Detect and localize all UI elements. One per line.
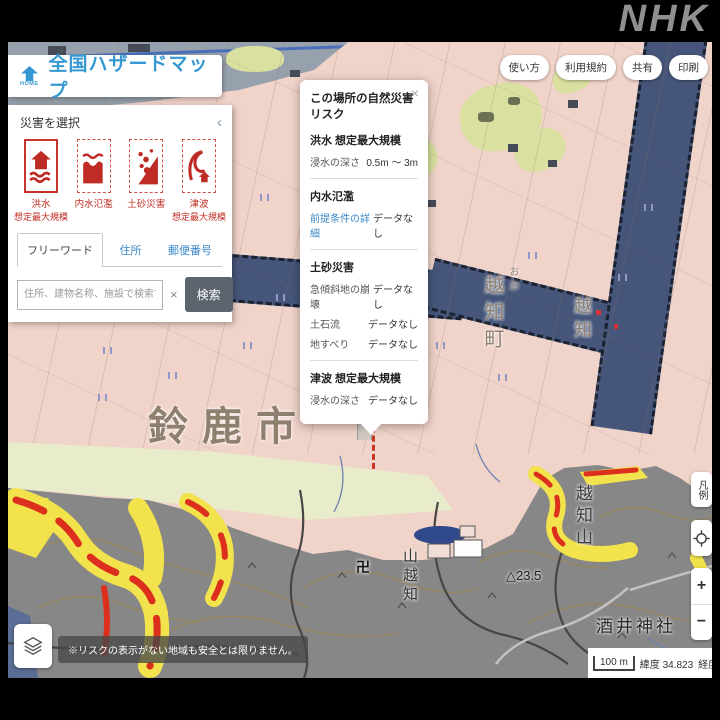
- paddy-symbol: [260, 194, 269, 201]
- latitude-label: 緯度: [640, 660, 660, 671]
- dosha-row-value: データなし: [373, 281, 418, 311]
- paddy-symbol: [168, 372, 177, 379]
- paddy-symbol: [243, 342, 252, 349]
- search-input[interactable]: [17, 280, 163, 310]
- tsunami-depth-label: 浸水の深さ: [310, 392, 360, 407]
- home-arrow-icon: [21, 66, 38, 81]
- search-button[interactable]: 検索: [185, 277, 233, 312]
- dosha-row-label: 地すべり: [310, 336, 349, 351]
- map-label-temple: 卍: [356, 557, 370, 577]
- flood-section-title: 洪水 想定最大規模: [310, 132, 418, 148]
- map-scale: 100 m: [593, 656, 635, 671]
- paddy-symbol: [276, 294, 285, 301]
- home-button[interactable]: HOME: [20, 66, 39, 87]
- tsunami-icon: [186, 145, 212, 187]
- app-title: 全国ハザードマップ: [49, 49, 223, 103]
- disaster-naisui-button[interactable]: 内水氾濫: [77, 139, 111, 223]
- disaster-panel: 災害を選択 ‹ 洪水 想定最大規模: [8, 105, 232, 322]
- current-location-button[interactable]: [691, 520, 712, 556]
- paddy-symbol: [103, 347, 112, 354]
- share-button[interactable]: 共有: [623, 55, 662, 80]
- map-label-yamaochi: 山越知: [399, 548, 420, 605]
- disaster-flood-button[interactable]: 洪水 想定最大規模: [24, 139, 58, 223]
- risk-disclaimer: ※リスクの表示がない地域も安全とは限りません。: [58, 636, 308, 663]
- layers-button[interactable]: [14, 624, 52, 668]
- tsunami-section-title: 津波 想定最大規模: [310, 370, 418, 386]
- map-label-elevation: △23.5: [506, 568, 541, 584]
- dosha-row-label: 急傾斜地の崩壊: [310, 281, 373, 311]
- paddy-symbol: [436, 342, 445, 349]
- coordinate-bar: 100 m 緯度 34.823 経度 136.53: [588, 648, 712, 678]
- latitude-value: 34.823: [663, 660, 694, 671]
- nhk-logo: NHK: [619, 0, 710, 41]
- flood-icon: [28, 145, 54, 187]
- crosshair-icon: [693, 530, 710, 547]
- inland-flood-icon: [81, 145, 107, 187]
- paddy-symbol: [528, 252, 537, 259]
- paddy-symbol: [98, 394, 107, 401]
- tab-zipcode[interactable]: 郵便番号: [158, 234, 222, 266]
- naisui-section-title: 内水氾濫: [310, 188, 418, 204]
- clear-icon[interactable]: ×: [169, 287, 179, 302]
- precondition-link[interactable]: 前提条件の詳細: [310, 210, 373, 240]
- paddy-symbol: [644, 204, 653, 211]
- disaster-dosha-button[interactable]: 土砂災害: [129, 139, 163, 223]
- dosha-row-value: データなし: [368, 316, 418, 331]
- map-label-city: 鈴鹿市: [148, 394, 310, 452]
- landslide-icon: [133, 145, 159, 187]
- layers-icon: [22, 635, 44, 657]
- top-menu: 使い方 利用規約 共有 印刷: [500, 55, 709, 80]
- longitude-label: 経度: [698, 660, 712, 671]
- search-tabs: フリーワード 住所 郵便番号: [17, 233, 222, 267]
- disaster-tsunami-button[interactable]: 津波 想定最大規模: [182, 139, 216, 223]
- dosha-row-label: 土石流: [310, 316, 340, 331]
- tab-address[interactable]: 住所: [110, 234, 152, 266]
- popup-title: この場所の自然災害リスク: [310, 90, 418, 122]
- panel-title: 災害を選択: [20, 114, 80, 131]
- paddy-symbol: [498, 374, 507, 381]
- map-label-town: 越知町: [478, 274, 507, 355]
- paddy-symbol: [618, 274, 627, 281]
- map-canvas[interactable]: 鈴鹿市 越知町 おお 越知 越知山 山越知 酒井神社 △23.5 卍 HOME …: [8, 42, 712, 678]
- map-label-ochiyama: 越知山: [570, 484, 595, 550]
- terms-button[interactable]: 利用規約: [556, 55, 616, 80]
- flood-depth-value: 0.5m ～ 3m: [366, 154, 418, 169]
- dosha-section-title: 土砂災害: [310, 259, 418, 275]
- zoom-out-button[interactable]: −: [691, 605, 712, 641]
- naisui-value: データなし: [373, 210, 418, 240]
- zoom-control: + −: [691, 568, 712, 640]
- title-bar: HOME 全国ハザードマップ: [8, 55, 222, 97]
- tsunami-depth-value: データなし: [368, 392, 418, 407]
- map-label-oo: おお: [505, 266, 520, 294]
- zoom-in-button[interactable]: +: [691, 568, 712, 605]
- collapse-chevron-icon[interactable]: ‹: [217, 118, 222, 128]
- home-label: HOME: [20, 81, 39, 87]
- dosha-row-value: データなし: [368, 336, 418, 351]
- flood-depth-label: 浸水の深さ: [310, 154, 360, 169]
- tab-freeword[interactable]: フリーワード: [17, 233, 103, 267]
- map-label-ochi: 越知: [569, 296, 595, 344]
- app-frame: NHK: [0, 0, 720, 720]
- close-icon[interactable]: ×: [411, 87, 419, 99]
- print-button[interactable]: 印刷: [669, 55, 708, 80]
- legend-button[interactable]: 凡例: [691, 472, 712, 507]
- howto-button[interactable]: 使い方: [500, 55, 550, 80]
- map-label-shrine: 酒井神社: [596, 612, 676, 637]
- risk-popup: × この場所の自然災害リスク 洪水 想定最大規模 浸水の深さ 0.5m ～ 3m…: [300, 80, 428, 424]
